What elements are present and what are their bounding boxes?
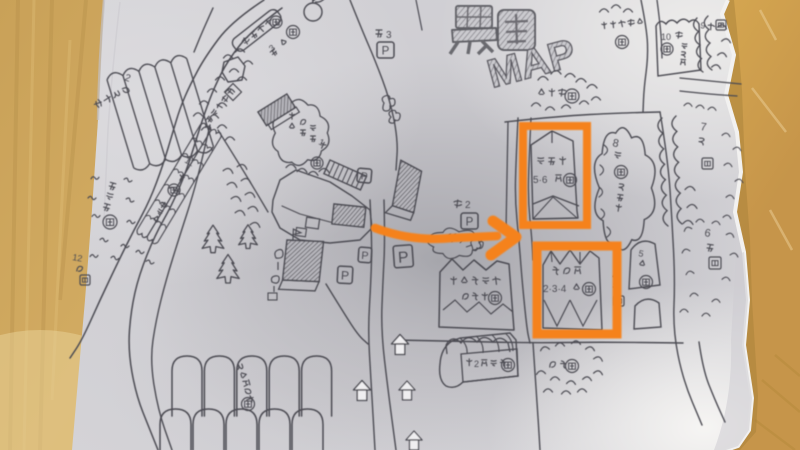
svg-text:P: P xyxy=(341,268,350,282)
svg-text:12: 12 xyxy=(72,252,84,264)
svg-text:P: P xyxy=(397,249,409,267)
svg-text:2: 2 xyxy=(474,359,479,369)
svg-text:5·6: 5·6 xyxy=(533,175,548,186)
svg-text:2·3·4: 2·3·4 xyxy=(543,284,567,295)
svg-text:2: 2 xyxy=(465,200,471,211)
svg-text:10: 10 xyxy=(661,32,671,42)
svg-text:P: P xyxy=(361,250,369,262)
svg-text:3: 3 xyxy=(386,30,392,41)
svg-text:P: P xyxy=(466,216,474,228)
svg-text:P: P xyxy=(360,171,368,183)
svg-text:P: P xyxy=(382,45,390,57)
